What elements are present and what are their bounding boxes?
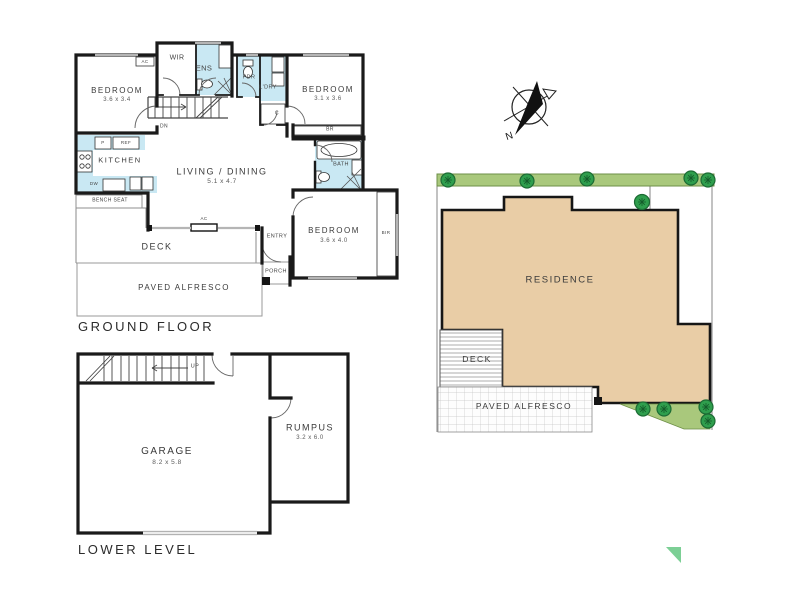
site-black-marker (594, 397, 602, 405)
site-deck-label: DECK (462, 355, 492, 364)
ac-wall-label: AC (141, 60, 148, 65)
bath-label: BATH (333, 162, 349, 168)
walls-lower-level (78, 354, 348, 533)
lower-level-title: LOWER LEVEL (78, 543, 197, 556)
corner-accent-icon (666, 547, 681, 563)
fridge-label: REF (121, 141, 131, 146)
ens-label: ENS (196, 64, 213, 72)
residence-label: RESIDENCE (526, 275, 595, 285)
stairs-down-label: DN (160, 125, 168, 130)
garage-door (143, 531, 257, 534)
stairs-lower-level (86, 356, 204, 381)
garage-label: GARAGE (141, 447, 193, 457)
bedroom1-label: BEDROOM (91, 87, 143, 95)
door-arcs-lower-level (212, 355, 291, 418)
rumpus-dims: 3.2 x 6.0 (296, 435, 324, 441)
living-dining-label: LIVING / DINING (176, 168, 267, 177)
bench-seat-label: BENCH SEAT (92, 199, 128, 204)
outdoor-outlines-ground-floor (76, 195, 290, 316)
garden-strip (437, 174, 714, 186)
ground-floor-title: GROUND FLOOR (78, 320, 214, 333)
stairs-ground-floor (148, 97, 228, 118)
paved-alfresco-label: PAVED ALFRESCO (138, 284, 230, 292)
robe-bir-label: BIR (382, 231, 391, 236)
floorplan-page: BEDROOM 3.6 x 3.4 WIR ENS PDR L'DRY C BE… (0, 0, 800, 600)
stairs-up-label: UP (191, 364, 199, 370)
garage-dims: 8.2 x 5.8 (152, 460, 181, 467)
porch-label: PORCH (265, 269, 287, 275)
kitchen-label: KITCHEN (98, 156, 141, 164)
living-dining-dims: 5.1 x 4.7 (207, 179, 236, 186)
robe-br-label: BR (326, 128, 334, 133)
bedroom3-dims: 3.6 x 4.0 (320, 238, 348, 244)
ac-deck-label: AC (200, 217, 207, 222)
deck-label: DECK (141, 243, 172, 252)
bedroom3-label: BEDROOM (308, 227, 360, 235)
dishwasher-label: DW (90, 182, 98, 187)
bedroom2-dims: 3.1 x 3.6 (314, 96, 342, 102)
compass-north-icon (504, 81, 556, 135)
bedroom2-label: BEDROOM (302, 86, 354, 94)
laundry-label: L'DRY (259, 85, 277, 91)
pantry-label: P (101, 141, 104, 146)
cupboard-label: C (275, 112, 279, 117)
pdr-label: PDR (243, 75, 256, 81)
site-alfresco-label: PAVED ALFRESCO (476, 402, 572, 411)
wir-label: WIR (170, 55, 185, 62)
entry-label: ENTRY (267, 234, 288, 240)
rumpus-label: RUMPUS (286, 424, 334, 433)
bedroom1-dims: 3.6 x 3.4 (103, 97, 131, 103)
